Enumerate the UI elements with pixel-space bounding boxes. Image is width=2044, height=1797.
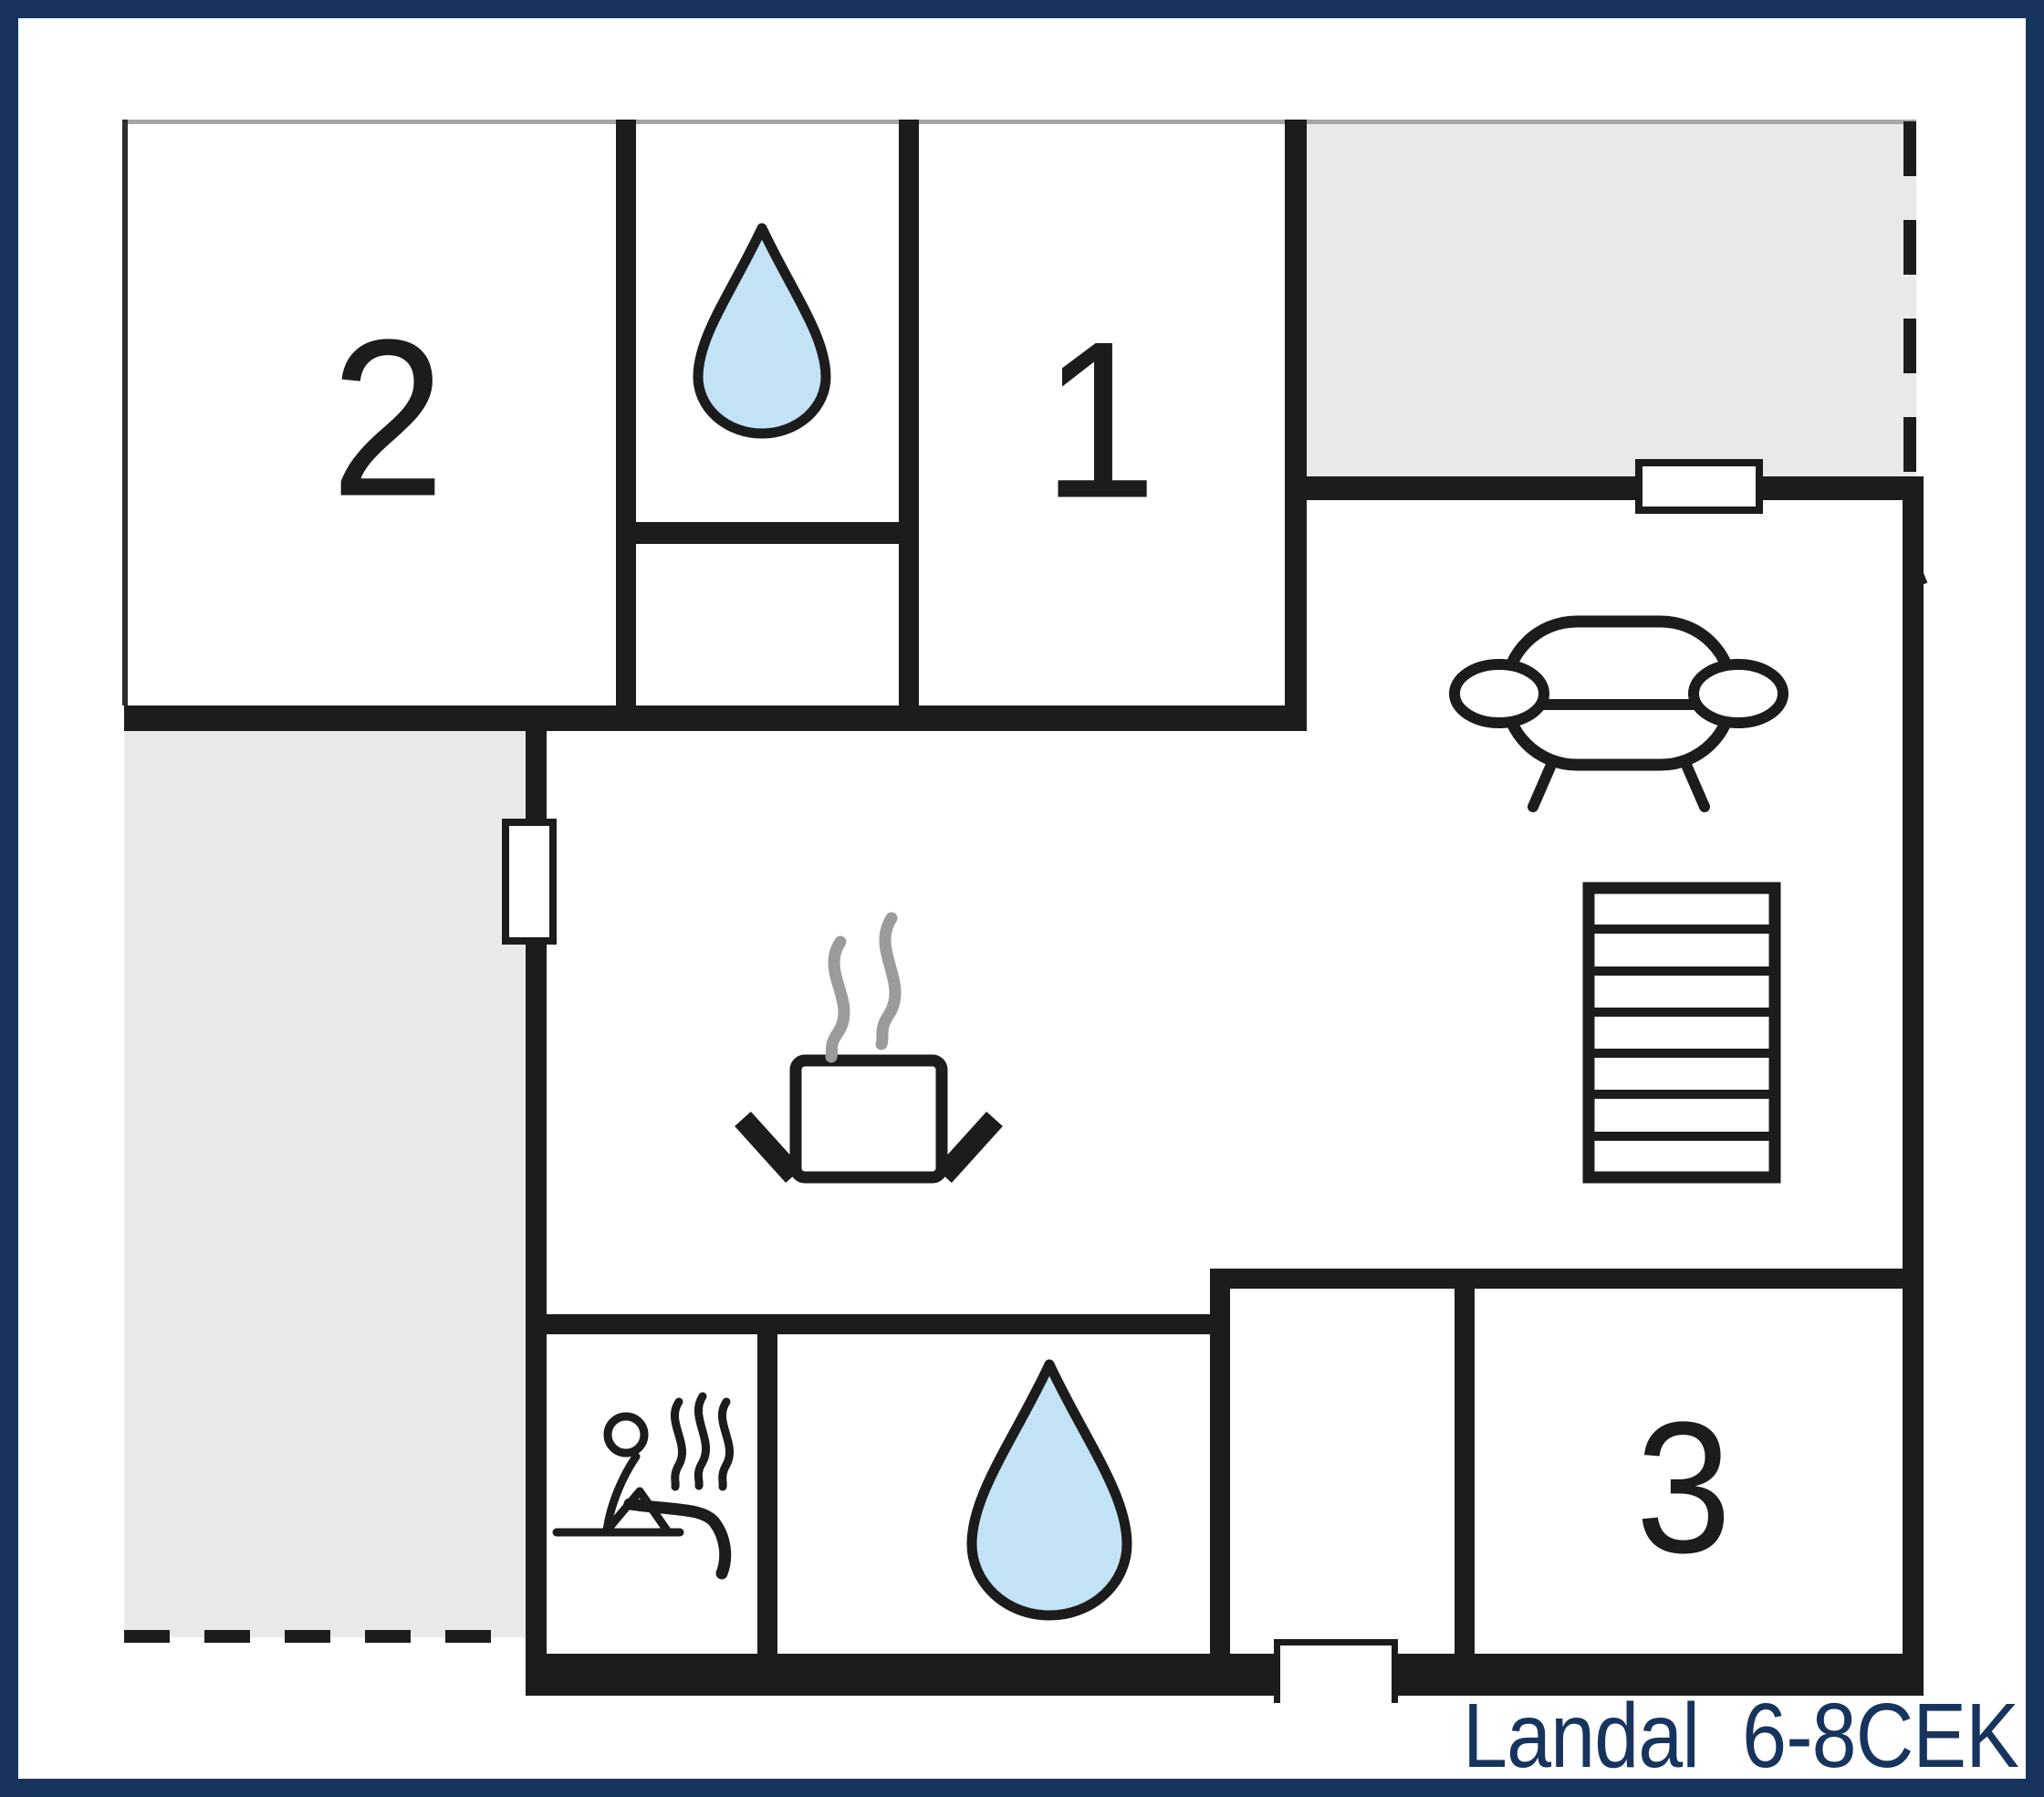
- wall-sauna-bath-divider: [757, 1334, 777, 1654]
- wall-room2-bathroom: [616, 120, 636, 705]
- wall-under-bedrooms: [124, 705, 1307, 731]
- sauna-person-steam-icon: [557, 1396, 730, 1573]
- door-terrace: [1635, 459, 1763, 514]
- room-1-label: 1: [1042, 308, 1156, 532]
- wall-hall-room3-divider: [1455, 1289, 1475, 1654]
- wall-bathroom-top-divider: [634, 522, 918, 544]
- exterior-line-top: [124, 120, 1916, 124]
- floorplan-canvas: 2 1 3 Landal 6-8CEK: [0, 0, 2044, 1797]
- frame-border-left: [0, 0, 18, 1797]
- door-porch: [502, 819, 557, 945]
- room-3-label: 3: [1636, 1395, 1732, 1582]
- wall-sauna-bath-top: [526, 1314, 1230, 1334]
- frame-border-top: [0, 0, 2044, 18]
- frame-border-right: [2026, 0, 2044, 1797]
- water-drop-icon: [972, 1364, 1127, 1615]
- wall-hall-room3-top: [1210, 1269, 1903, 1289]
- steaming-pot-icon: [743, 918, 995, 1177]
- door-entrance: [1274, 1639, 1398, 1703]
- terrace-area: [1307, 124, 1916, 476]
- wall-exterior-right: [1903, 476, 1924, 1696]
- wall-terrace-bottom: [1285, 476, 1924, 500]
- wall-bathroom-room1: [899, 120, 919, 705]
- sofa-icon: [1455, 622, 1783, 807]
- water-drop-icon: [698, 228, 826, 434]
- wall-bath-hall-divider: [1210, 1289, 1230, 1654]
- porch-area: [124, 731, 526, 1637]
- room-2-label: 2: [330, 307, 444, 530]
- porch-dashed-edge: [124, 1630, 526, 1643]
- terrace-dashed-edge: [1903, 121, 1916, 476]
- frame-border-bottom: [0, 1779, 2044, 1797]
- stairs-icon: [1589, 888, 1775, 1177]
- plan-reference-label: Landal 6-8CEK: [1463, 1690, 2018, 1781]
- exterior-line-left: [122, 120, 128, 705]
- wall-room1-terrace: [1285, 120, 1307, 731]
